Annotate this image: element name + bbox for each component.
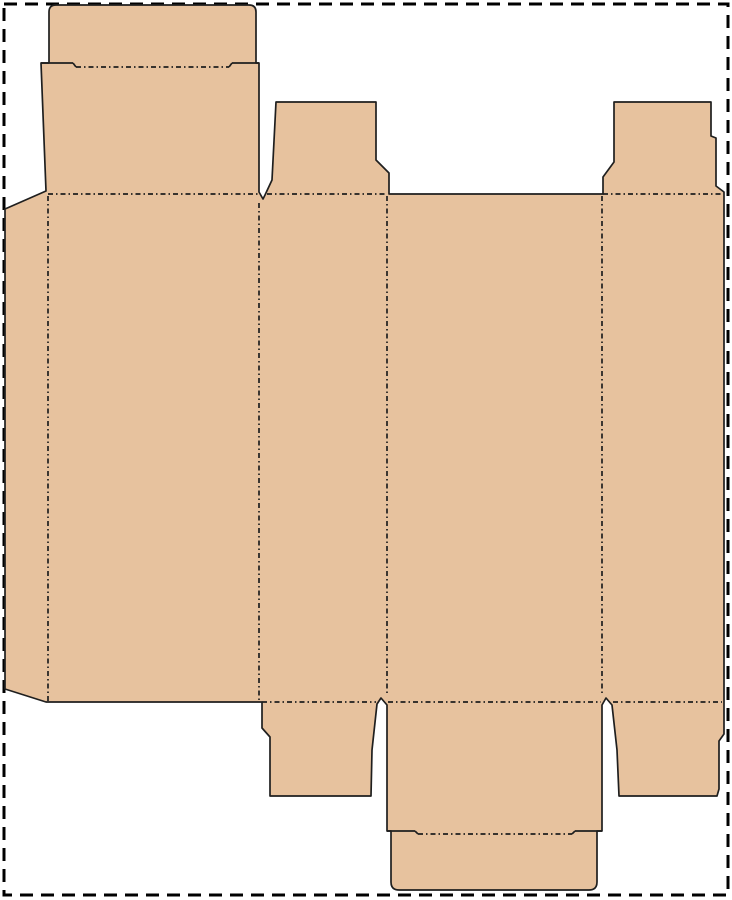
- dieline-canvas: [0, 0, 732, 900]
- dieline-drawing: [0, 0, 732, 900]
- carton-outline: [5, 5, 724, 890]
